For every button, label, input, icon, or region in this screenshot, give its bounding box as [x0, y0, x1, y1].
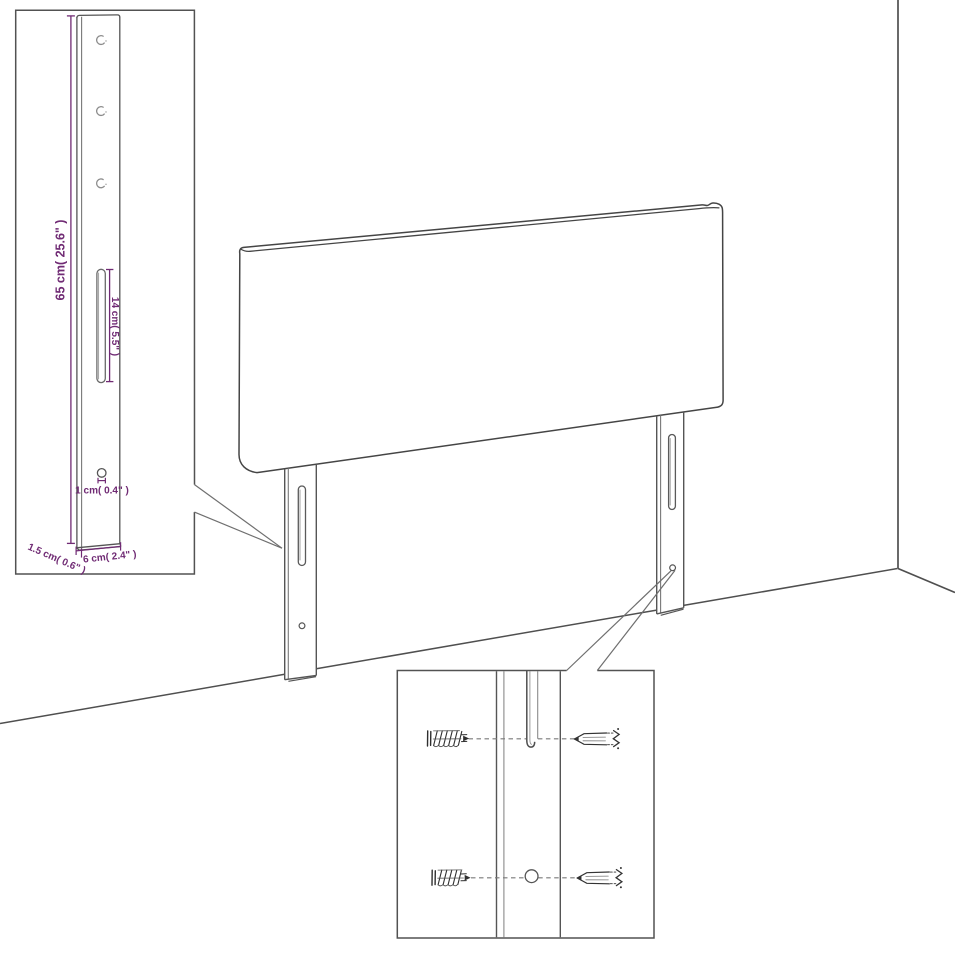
svg-text:6 cm( 2.4" ): 6 cm( 2.4" ) — [82, 549, 137, 566]
svg-text:1 cm( 0.4" ): 1 cm( 0.4" ) — [75, 485, 129, 496]
svg-text:14 cm( 5.5" ): 14 cm( 5.5" ) — [109, 297, 120, 356]
svg-text:65 cm( 25.6" ): 65 cm( 25.6" ) — [54, 220, 68, 301]
